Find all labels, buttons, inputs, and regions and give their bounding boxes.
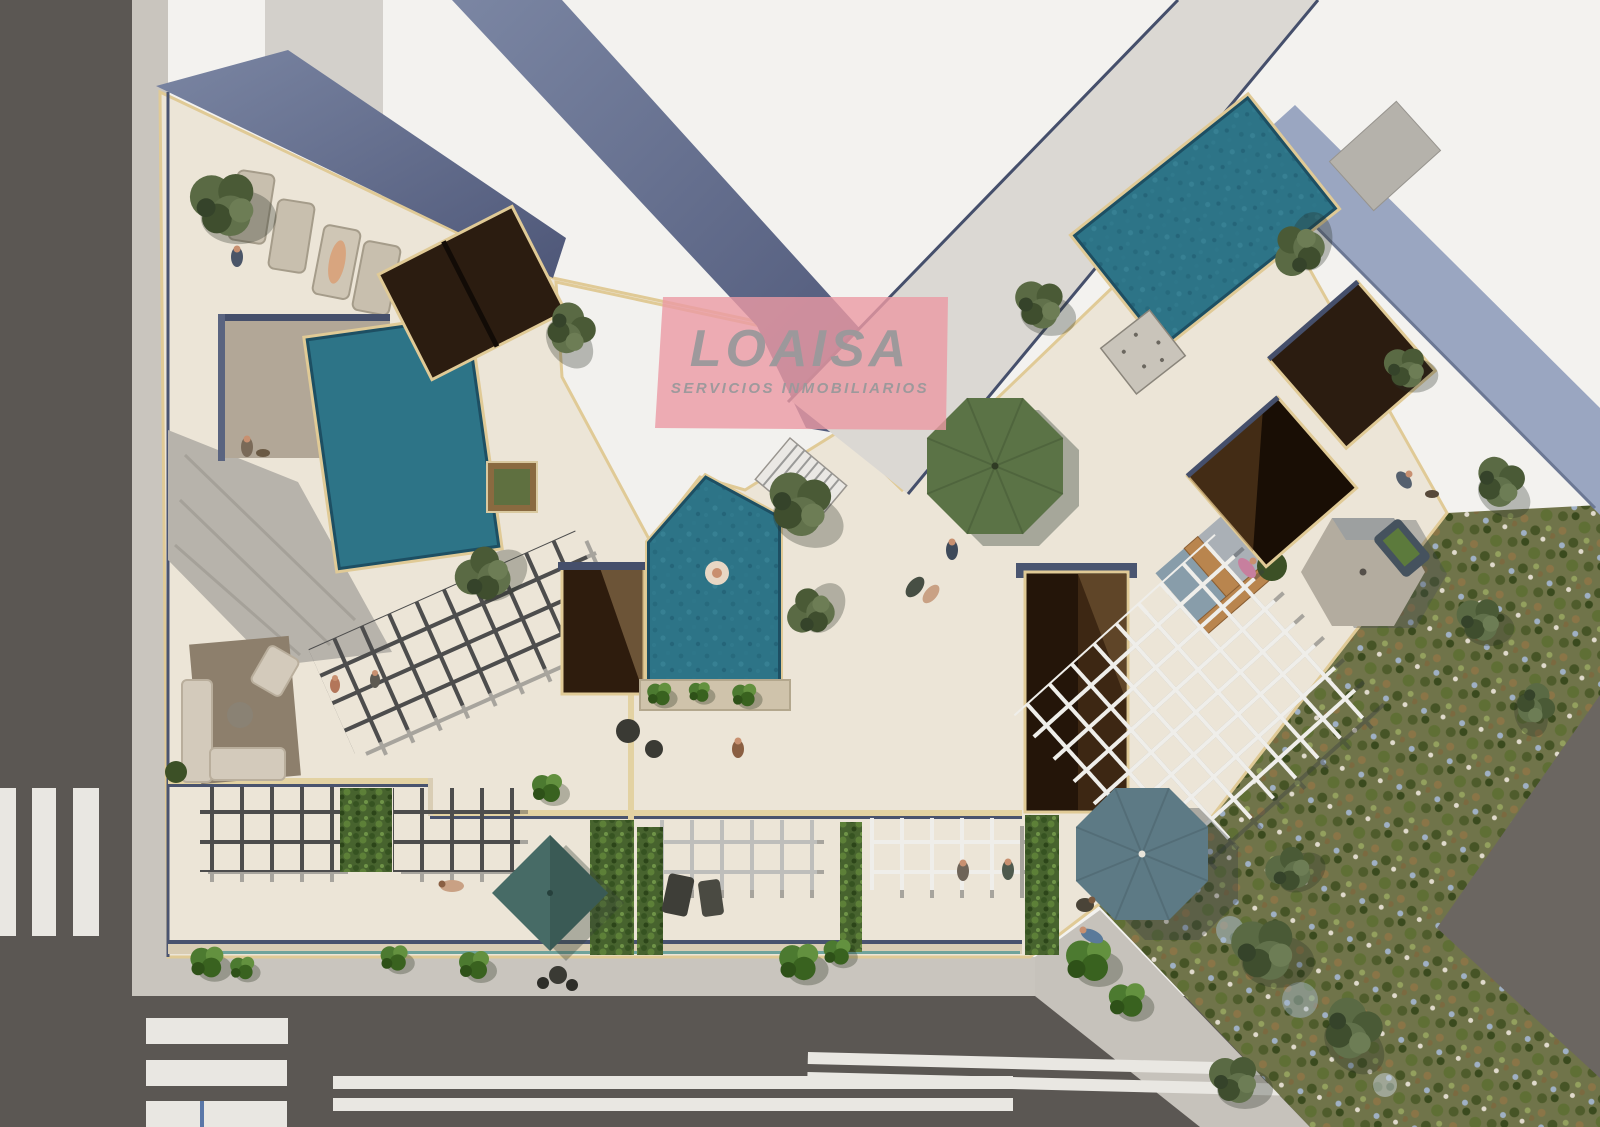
crosswalk-bottom bbox=[146, 1018, 288, 1127]
sidewalk-bottom bbox=[132, 957, 1035, 996]
watermark-logo-text: LOAISA bbox=[690, 320, 910, 378]
coffee-table bbox=[227, 702, 253, 728]
parapet-shadow bbox=[168, 784, 430, 787]
hedge-planter bbox=[840, 822, 862, 952]
crosswalk-stripe bbox=[32, 788, 56, 936]
road-left bbox=[0, 0, 132, 1127]
watermark-subtitle-text: SERVICIOS INMOBILIARIOS bbox=[671, 380, 929, 397]
pergola-white-E bbox=[870, 818, 1028, 898]
crosswalk-stripe bbox=[73, 788, 99, 936]
pergola-dark-B bbox=[200, 787, 348, 882]
frame-art-table bbox=[487, 462, 537, 512]
person-floating bbox=[712, 568, 722, 578]
crosswalk-stripe bbox=[146, 1018, 288, 1044]
crosswalk-stripe bbox=[0, 788, 16, 936]
patio-void-small bbox=[558, 562, 648, 694]
pergola-dark-C bbox=[393, 788, 528, 882]
parasol-pole bbox=[992, 463, 999, 470]
hedge-planter bbox=[340, 788, 392, 872]
lane-line bbox=[333, 1098, 1013, 1111]
round-table bbox=[645, 740, 663, 758]
crosswalk-stripe bbox=[146, 1060, 287, 1086]
blue-paint-line bbox=[200, 1101, 204, 1127]
canopy-edge bbox=[222, 314, 390, 321]
parasol-pole bbox=[547, 890, 553, 896]
canopy-edge bbox=[218, 314, 225, 461]
aerial-render-page: LOAISA SERVICIOS INMOBILIARIOS bbox=[0, 0, 1600, 1127]
crosswalk-stripe bbox=[146, 1101, 287, 1127]
sofa bbox=[210, 748, 285, 780]
potted-plant bbox=[165, 761, 187, 783]
hedge-planter bbox=[1025, 815, 1059, 955]
watermark: LOAISA SERVICIOS INMOBILIARIOS bbox=[655, 297, 948, 430]
flower-patch bbox=[1282, 982, 1318, 1018]
flower-patch bbox=[1373, 1073, 1397, 1097]
hedge-planter bbox=[637, 827, 663, 955]
parasol-pole bbox=[1139, 851, 1146, 858]
aerial-render: LOAISA SERVICIOS INMOBILIARIOS bbox=[0, 0, 1600, 1127]
sofa bbox=[182, 680, 212, 782]
round-table bbox=[616, 719, 640, 743]
crosswalk-left bbox=[0, 788, 99, 936]
parasol-pole bbox=[1360, 569, 1367, 576]
